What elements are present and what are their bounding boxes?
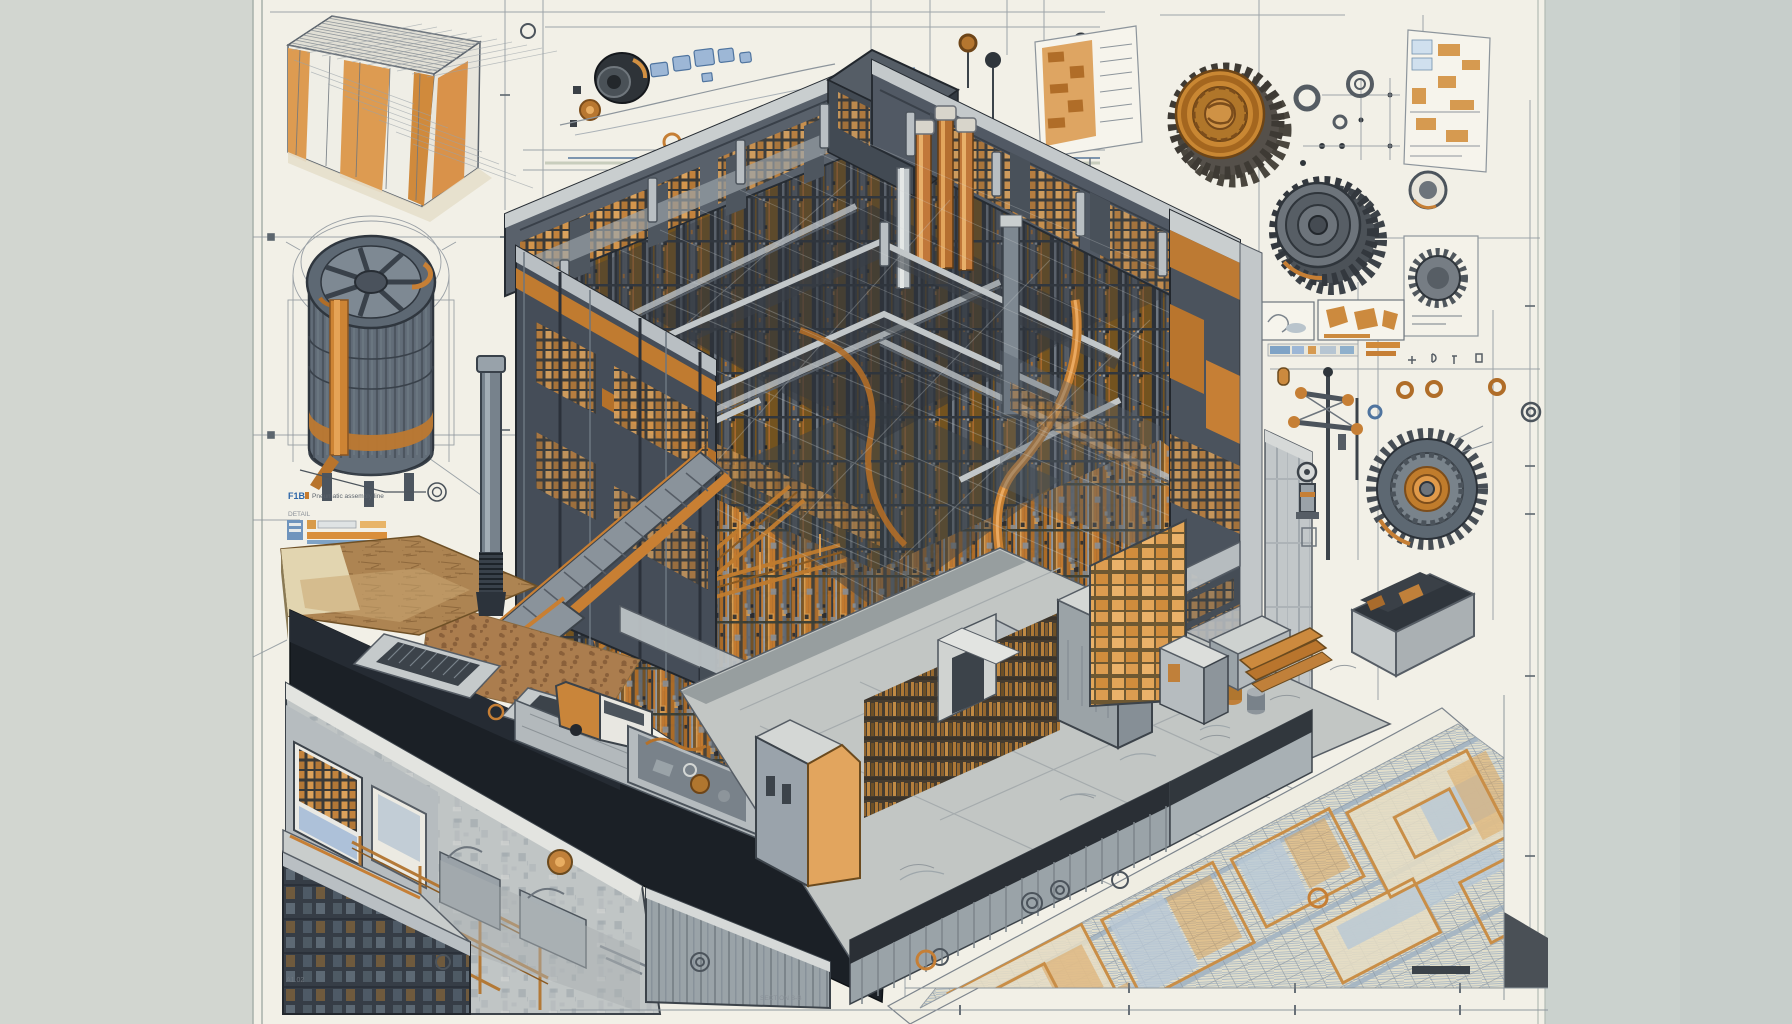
svg-text:F1B: F1B <box>288 491 306 501</box>
svg-text:SECTION B-B: SECTION B-B <box>760 995 802 1002</box>
svg-text:DETAIL: DETAIL <box>288 511 311 518</box>
svg-text:Pneumatic assembly line: Pneumatic assembly line <box>312 493 384 500</box>
svg-text:A1.02: A1.02 <box>286 977 304 984</box>
